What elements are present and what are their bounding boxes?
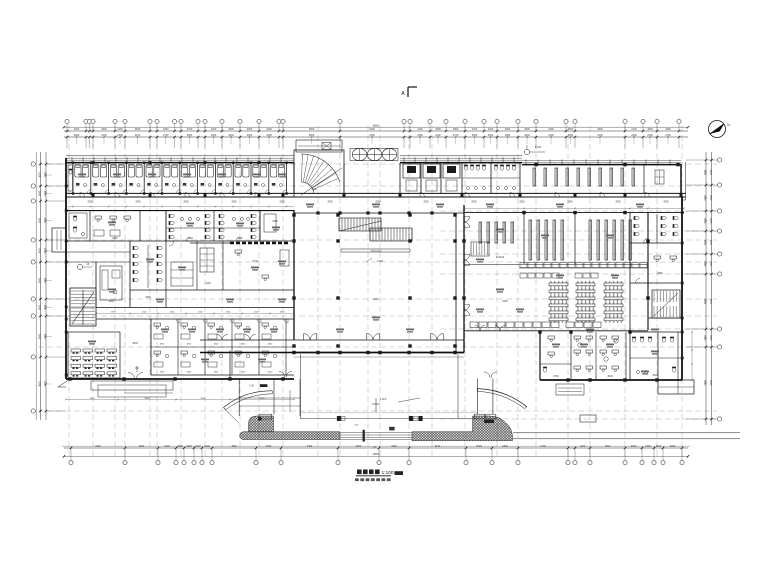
svg-text:3300: 3300 xyxy=(101,128,107,131)
svg-text:3000: 3000 xyxy=(524,128,530,131)
svg-text:1500: 1500 xyxy=(309,128,315,131)
svg-text:3600: 3600 xyxy=(39,172,42,178)
svg-text:1500: 1500 xyxy=(710,239,713,245)
svg-text:2550: 2550 xyxy=(567,201,573,204)
svg-text:12.00x2: 12.00x2 xyxy=(496,256,505,259)
svg-text:1:100: 1:100 xyxy=(382,470,394,476)
svg-text:3600: 3600 xyxy=(647,128,653,131)
svg-text:2550: 2550 xyxy=(135,201,141,204)
svg-text:3600: 3600 xyxy=(39,381,42,387)
svg-text:3300: 3300 xyxy=(369,128,375,131)
svg-text:3600: 3600 xyxy=(39,304,42,310)
svg-text:1500: 1500 xyxy=(568,128,574,131)
svg-text:1500: 1500 xyxy=(652,374,658,377)
svg-text:2700: 2700 xyxy=(704,261,707,267)
svg-text:2700: 2700 xyxy=(704,195,707,201)
svg-text:2400: 2400 xyxy=(502,300,508,303)
svg-text:3600: 3600 xyxy=(39,248,42,254)
svg-text:2550: 2550 xyxy=(183,201,189,204)
svg-text:2550: 2550 xyxy=(657,272,663,275)
svg-text:2400: 2400 xyxy=(548,128,554,131)
svg-text:4500: 4500 xyxy=(505,128,511,131)
svg-text:3600: 3600 xyxy=(39,217,42,223)
svg-text:2100: 2100 xyxy=(117,128,123,131)
svg-text:2550: 2550 xyxy=(87,201,93,204)
svg-text:2100: 2100 xyxy=(631,128,637,131)
svg-text:1500: 1500 xyxy=(710,335,713,341)
svg-text:15.54: 15.54 xyxy=(252,260,259,263)
svg-text:2700: 2700 xyxy=(472,128,478,131)
svg-text:1500: 1500 xyxy=(710,380,713,386)
svg-text:2.100: 2.100 xyxy=(535,145,542,149)
svg-text:1500: 1500 xyxy=(710,261,713,267)
svg-text:1500: 1500 xyxy=(710,218,713,224)
svg-text:2100: 2100 xyxy=(205,282,211,285)
svg-text:3000: 3000 xyxy=(607,375,613,378)
svg-text:3750x1500: 3750x1500 xyxy=(371,251,383,253)
svg-text:2550: 2550 xyxy=(279,201,285,204)
svg-text:1:45: 1:45 xyxy=(249,385,254,387)
svg-text:3600: 3600 xyxy=(435,128,441,131)
svg-text:UP: UP xyxy=(313,188,317,191)
svg-text:2100: 2100 xyxy=(417,128,423,131)
svg-text:46800: 46800 xyxy=(373,453,381,456)
svg-text:8100: 8100 xyxy=(373,298,379,301)
svg-text:3600: 3600 xyxy=(135,128,141,131)
svg-text:2700: 2700 xyxy=(704,335,707,341)
svg-text:1250: 1250 xyxy=(237,237,243,240)
svg-text:2400: 2400 xyxy=(266,128,272,131)
svg-text:1200: 1200 xyxy=(211,128,217,131)
svg-text:0.450: 0.450 xyxy=(377,261,383,263)
svg-text:4500: 4500 xyxy=(228,128,234,131)
svg-text:2400: 2400 xyxy=(108,300,114,303)
svg-text:4500: 4500 xyxy=(132,342,138,345)
svg-text:2550: 2550 xyxy=(231,201,237,204)
svg-text:1800: 1800 xyxy=(44,277,47,283)
svg-text:2700: 2700 xyxy=(704,169,707,175)
svg-text:1800: 1800 xyxy=(453,128,459,131)
svg-text:2850: 2850 xyxy=(112,237,118,240)
svg-text:2550: 2550 xyxy=(519,201,525,204)
svg-text:3600: 3600 xyxy=(39,277,42,283)
svg-text:1500: 1500 xyxy=(145,296,151,299)
svg-text:1800: 1800 xyxy=(44,217,47,223)
svg-text:3900: 3900 xyxy=(90,398,96,400)
svg-text:3000: 3000 xyxy=(247,128,253,131)
svg-text:1800: 1800 xyxy=(44,190,47,196)
svg-text:2700: 2700 xyxy=(704,239,707,245)
svg-text:3900: 3900 xyxy=(260,398,266,400)
svg-text:1500: 1500 xyxy=(74,128,80,131)
svg-text:2550: 2550 xyxy=(423,201,429,204)
svg-text:1800: 1800 xyxy=(163,128,169,131)
svg-text:1200: 1200 xyxy=(488,128,494,131)
svg-text:3600: 3600 xyxy=(39,333,42,339)
svg-text:2550: 2550 xyxy=(615,201,621,204)
svg-text:2700: 2700 xyxy=(704,218,707,224)
svg-text:2550: 2550 xyxy=(663,201,669,204)
svg-text:3600: 3600 xyxy=(39,190,42,196)
svg-text:1250: 1250 xyxy=(187,237,193,240)
svg-text:2700: 2700 xyxy=(704,380,707,386)
svg-text:-250: -250 xyxy=(354,425,359,427)
svg-text:3300: 3300 xyxy=(597,128,603,131)
svg-text:1500: 1500 xyxy=(710,298,713,304)
svg-text:1 40.5: 1 40.5 xyxy=(380,398,387,401)
svg-text:1800: 1800 xyxy=(44,248,47,254)
svg-text:3900: 3900 xyxy=(201,398,207,400)
svg-text:1800: 1800 xyxy=(44,333,47,339)
svg-text:1800: 1800 xyxy=(665,128,671,131)
svg-text:2700: 2700 xyxy=(553,375,559,378)
svg-text:1800: 1800 xyxy=(44,381,47,387)
svg-text:1800: 1800 xyxy=(272,220,278,223)
svg-text:3900: 3900 xyxy=(145,398,151,400)
svg-text:2550: 2550 xyxy=(375,201,381,204)
svg-text:2550: 2550 xyxy=(327,201,333,204)
svg-text:2550: 2550 xyxy=(471,201,477,204)
svg-text:1500: 1500 xyxy=(710,169,713,175)
svg-text:1800: 1800 xyxy=(44,172,47,178)
svg-text:1500: 1500 xyxy=(710,195,713,201)
svg-text:2700: 2700 xyxy=(704,298,707,304)
svg-text:2700: 2700 xyxy=(187,128,193,131)
svg-text:1800: 1800 xyxy=(44,304,47,310)
